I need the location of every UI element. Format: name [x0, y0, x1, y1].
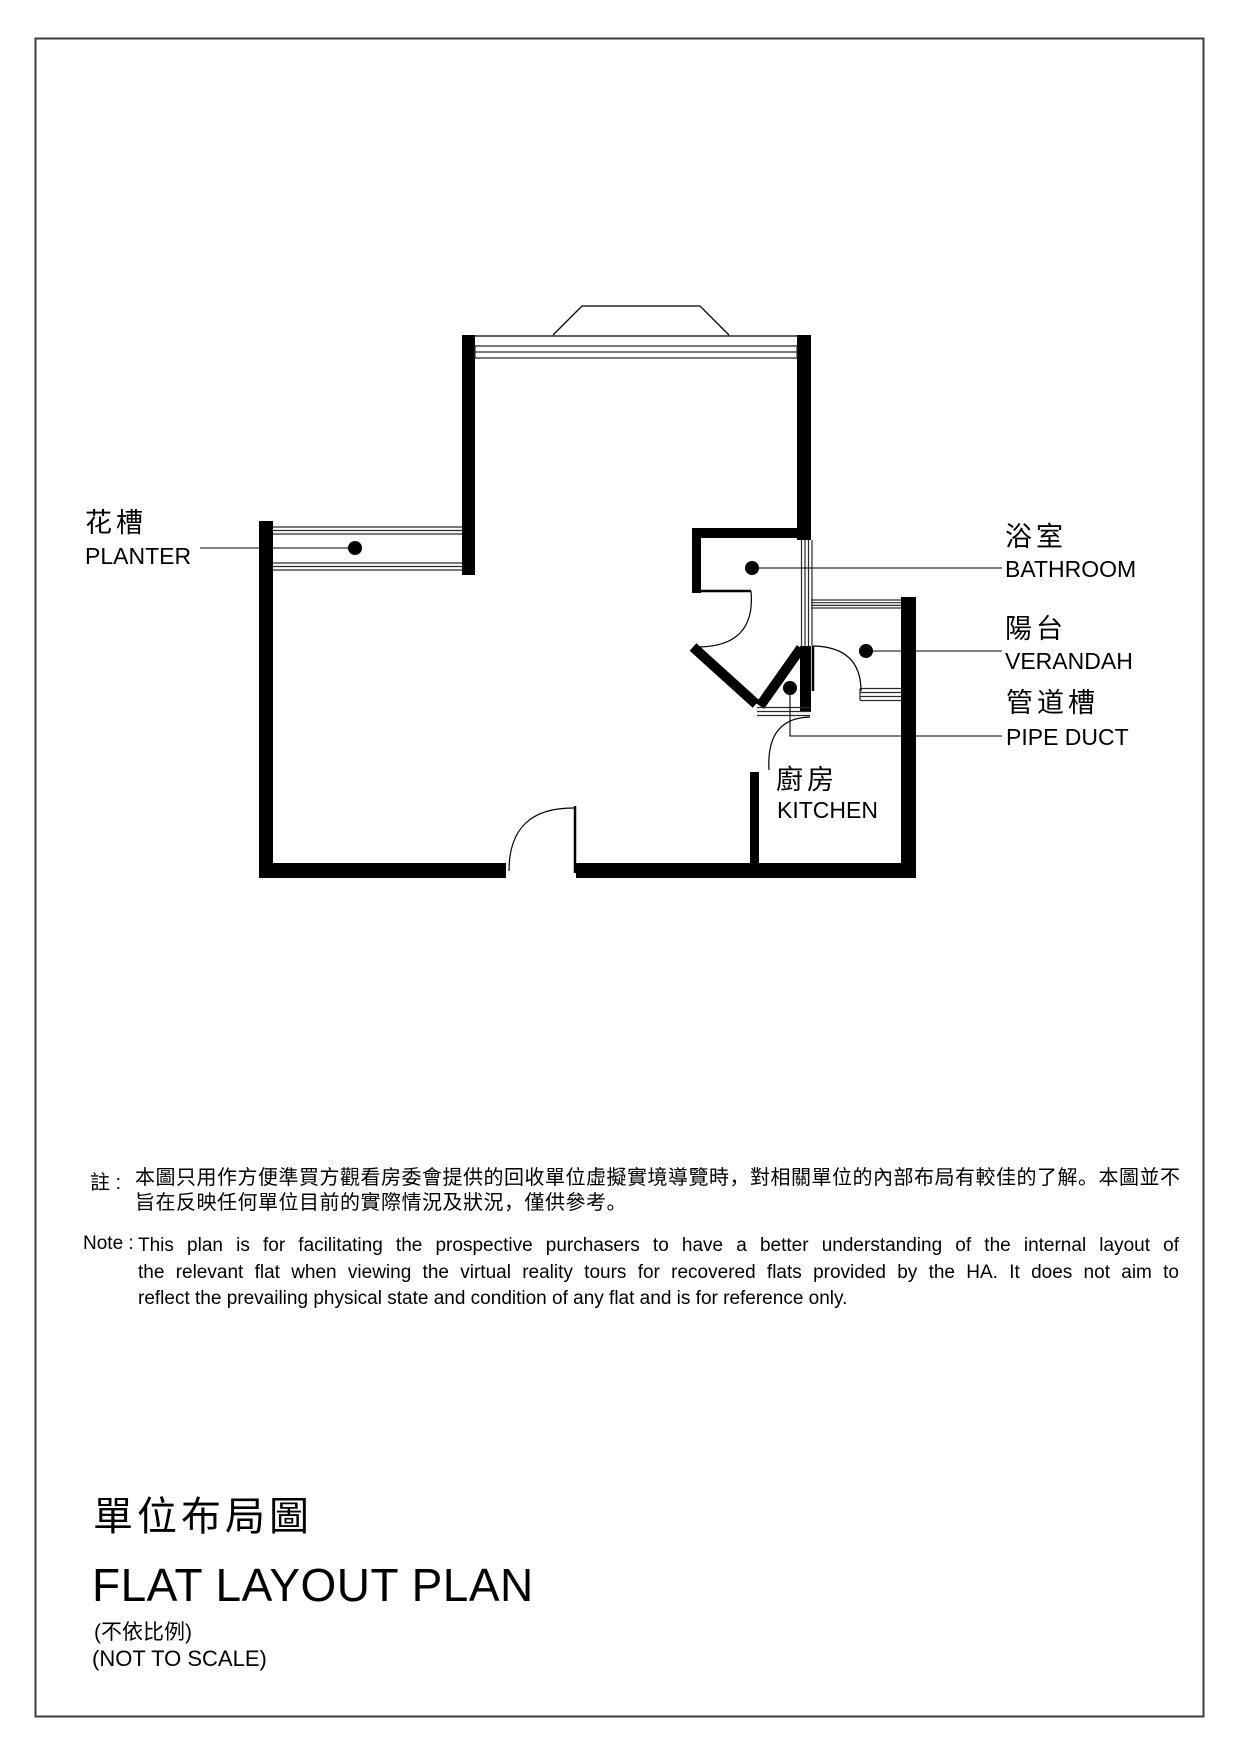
- verandah-label-en: VERANDAH: [1005, 648, 1133, 674]
- note-label-zh: 註 :: [90, 1166, 121, 1195]
- page-title-zh: 單位布局圖: [93, 1484, 313, 1542]
- scale-note-zh: (不依比例): [94, 1616, 192, 1646]
- bay-window: [462, 306, 811, 336]
- pipe-duct-label-en: PIPE DUCT: [1006, 724, 1129, 750]
- kitchen-label-zh: 廚房: [776, 765, 838, 795]
- floor-plan: [200, 306, 1002, 878]
- planter-label-zh: 花槽: [85, 508, 147, 538]
- note-text-en: This plan is for facilitating the prospe…: [138, 1233, 1179, 1313]
- leader-lines: [200, 548, 1002, 736]
- page-title-en: FLAT LAYOUT PLAN: [92, 1558, 534, 1612]
- planter-label-en: PLANTER: [85, 543, 191, 569]
- bathroom-label-zh: 浴室: [1005, 522, 1067, 552]
- note-en-line2: the relevant flat when viewing the virtu…: [138, 1260, 1179, 1287]
- note-zh-line2: 旨在反映任何單位目前的實際情況及狀況，僅供參考。: [135, 1191, 1181, 1216]
- note-zh-line1: 本圖只用作方便準買方觀看房委會提供的回收單位虛擬實境導覽時，對相關單位的內部布局…: [135, 1166, 1181, 1191]
- pipe-duct-label-zh: 管道槽: [1006, 688, 1099, 718]
- scale-note-en: (NOT TO SCALE): [92, 1646, 267, 1672]
- document-page: 花槽 PLANTER 浴室 BATHROOM 陽台 VERANDAH 管道槽 P…: [0, 0, 1240, 1755]
- bathroom-label-en: BATHROOM: [1005, 556, 1136, 582]
- note-text-zh: 本圖只用作方便準買方觀看房委會提供的回收單位虛擬實境導覽時，對相關單位的內部布局…: [135, 1166, 1181, 1215]
- note-label-en: Note :: [83, 1233, 134, 1255]
- note-en-line3: reflect the prevailing physical state an…: [138, 1286, 1179, 1313]
- note-en-line1: This plan is for facilitating the prospe…: [138, 1233, 1179, 1260]
- reference-dots: [348, 541, 873, 695]
- verandah-label-zh: 陽台: [1005, 614, 1067, 644]
- kitchen-label-en: KITCHEN: [777, 797, 878, 823]
